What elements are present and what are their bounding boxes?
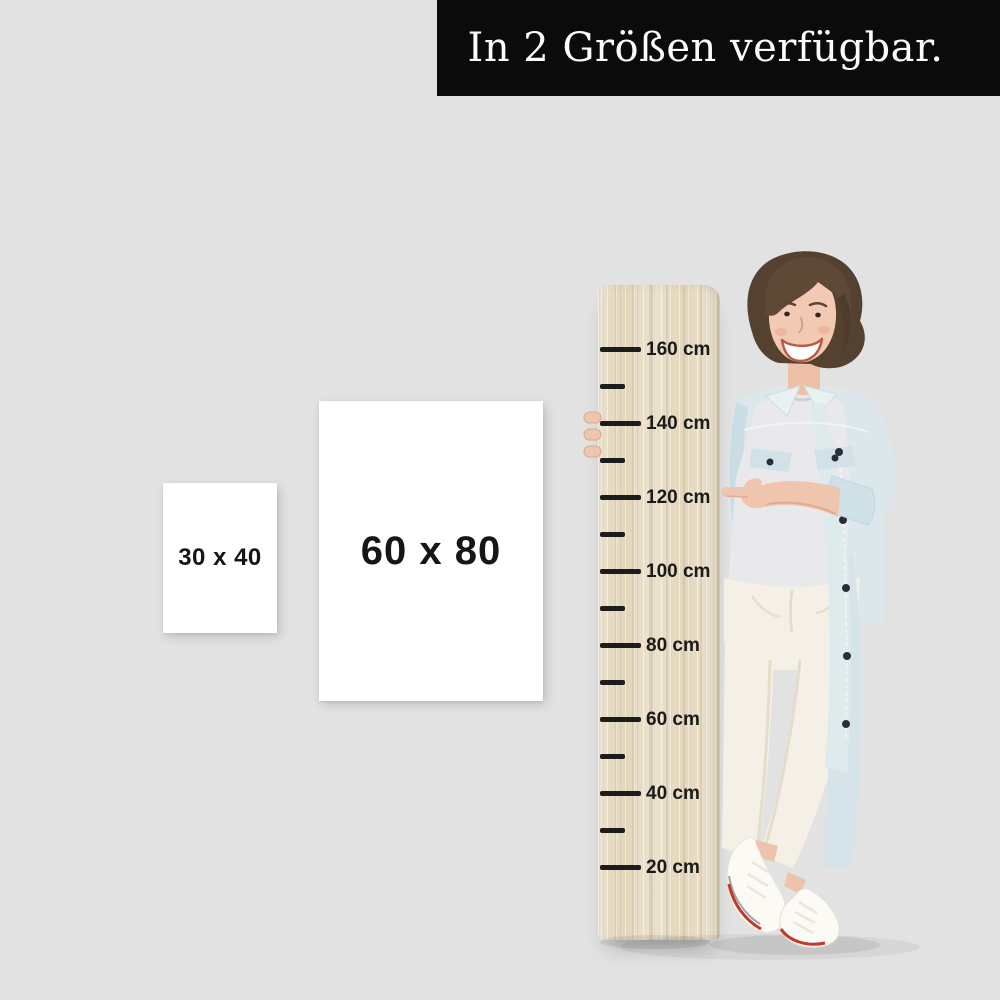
model-photo <box>580 250 940 960</box>
product-image: In 2 Größen verfügbar. 30 x 40 60 x 80 1… <box>0 0 1000 1000</box>
size-box-60x80: 60 x 80 <box>319 401 543 701</box>
banner-text: In 2 Größen verfügbar. <box>468 25 944 71</box>
floor-shadow <box>600 934 920 960</box>
size-label-small: 30 x 40 <box>178 544 262 572</box>
head <box>747 251 864 368</box>
size-label-large: 60 x 80 <box>361 529 501 574</box>
size-box-30x40: 30 x 40 <box>163 483 277 633</box>
availability-banner: In 2 Größen verfügbar. <box>437 0 1000 96</box>
gripping-fingertips <box>584 412 601 457</box>
